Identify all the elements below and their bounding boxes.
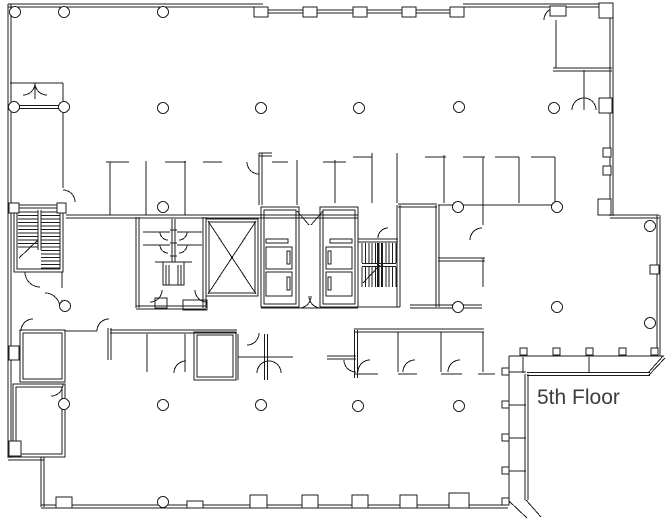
door-swing-arc bbox=[403, 360, 415, 372]
door-swing-arc bbox=[378, 228, 388, 238]
column-circle bbox=[645, 221, 656, 232]
window-mullion bbox=[187, 501, 203, 508]
floor-plan-page: 5th Floor bbox=[0, 0, 672, 520]
door-swing-arc bbox=[269, 361, 281, 373]
core-rect bbox=[266, 247, 292, 269]
window-mullion bbox=[586, 348, 593, 355]
outer-and-double-walls-layer bbox=[8, 4, 660, 508]
core-rect bbox=[194, 332, 236, 380]
door-swing-arc bbox=[247, 333, 259, 345]
floor-plan-svg: 5th Floor bbox=[0, 0, 672, 520]
column-circle bbox=[158, 400, 169, 411]
door-swing-arc bbox=[160, 245, 168, 253]
column-circle bbox=[256, 400, 267, 411]
window-mullion bbox=[603, 148, 611, 157]
window-mullion bbox=[353, 7, 367, 17]
door-swing-arcs-layer bbox=[21, 8, 596, 396]
window-mullion bbox=[9, 441, 21, 456]
window-mullion bbox=[400, 495, 417, 508]
columns-layer bbox=[9, 7, 656, 508]
door-swing-arc bbox=[35, 83, 47, 95]
window-mullion bbox=[502, 434, 509, 441]
wall-line bbox=[648, 356, 663, 373]
core-rect bbox=[23, 333, 62, 379]
window-mullion bbox=[599, 98, 612, 113]
window-mullion bbox=[402, 7, 416, 17]
core-rect bbox=[330, 239, 352, 243]
core-rects-layer bbox=[13, 205, 358, 457]
window-mullion bbox=[550, 6, 566, 16]
column-circle bbox=[59, 102, 70, 113]
core-rect bbox=[20, 330, 65, 382]
column-circle bbox=[453, 202, 464, 213]
door-swing-arc bbox=[63, 190, 75, 202]
door-swing-arc bbox=[23, 83, 35, 95]
window-mullion bbox=[502, 467, 509, 474]
column-circle bbox=[158, 497, 169, 508]
column-circle bbox=[552, 202, 563, 213]
window-mullion bbox=[553, 348, 560, 355]
window-mullion bbox=[450, 7, 464, 17]
stair-treads-layer bbox=[18, 212, 396, 287]
window-mullion bbox=[302, 495, 318, 508]
window-mullion bbox=[250, 495, 267, 508]
core-rect bbox=[197, 335, 233, 377]
door-swing-arc bbox=[358, 360, 370, 372]
door-swing-arc bbox=[470, 228, 482, 240]
core-rect bbox=[328, 251, 331, 264]
door-swing-arc bbox=[179, 245, 187, 253]
window-mullion bbox=[502, 498, 509, 505]
window-mullions-layer bbox=[9, 3, 659, 508]
core-rect bbox=[328, 277, 331, 290]
door-swing-arc bbox=[45, 293, 60, 308]
door-swing-arc bbox=[174, 361, 186, 373]
core-rect bbox=[326, 247, 352, 269]
column-circle bbox=[10, 7, 21, 18]
window-mullion bbox=[57, 203, 66, 213]
window-mullion bbox=[502, 401, 509, 408]
core-rect bbox=[287, 251, 290, 264]
door-swing-arc bbox=[160, 232, 168, 240]
window-mullion bbox=[449, 493, 469, 508]
window-mullion bbox=[9, 203, 19, 213]
core-rect bbox=[16, 387, 62, 454]
window-mullion bbox=[56, 497, 72, 508]
door-swing-arc bbox=[179, 232, 187, 240]
column-circle bbox=[256, 103, 267, 114]
window-mullion bbox=[599, 3, 613, 18]
column-circle bbox=[354, 103, 365, 114]
column-circle bbox=[158, 7, 169, 18]
door-swing-arc bbox=[448, 360, 460, 372]
wall-line bbox=[526, 500, 541, 517]
wall-line bbox=[648, 358, 665, 376]
door-swing-arc bbox=[51, 384, 63, 396]
column-circle bbox=[645, 318, 656, 329]
core-rect bbox=[264, 210, 296, 304]
column-circle bbox=[353, 401, 364, 412]
door-swing-arc bbox=[584, 98, 596, 110]
window-mullion bbox=[619, 348, 626, 355]
column-circle bbox=[59, 7, 70, 18]
door-swing-arc bbox=[572, 98, 584, 110]
window-mullion bbox=[603, 166, 611, 175]
window-mullion bbox=[502, 368, 509, 375]
window-mullion bbox=[303, 7, 317, 17]
door-swing-arc bbox=[97, 319, 109, 331]
column-circle bbox=[158, 103, 169, 114]
column-circle bbox=[59, 399, 70, 410]
column-circle bbox=[549, 103, 560, 114]
window-mullion bbox=[352, 495, 368, 508]
column-circle bbox=[453, 302, 464, 313]
window-mullion bbox=[9, 346, 19, 360]
door-swing-arc bbox=[247, 162, 259, 174]
door-swing-arc bbox=[150, 290, 162, 302]
core-rect bbox=[326, 272, 352, 296]
core-rect bbox=[266, 272, 292, 296]
core-rect bbox=[266, 239, 288, 243]
door-swing-arc bbox=[21, 319, 33, 331]
core-rect bbox=[261, 207, 299, 307]
window-mullion bbox=[598, 199, 611, 215]
column-circle bbox=[60, 301, 71, 312]
floor-label: 5th Floor bbox=[537, 386, 620, 409]
column-circle bbox=[454, 102, 465, 113]
window-mullion bbox=[254, 7, 268, 17]
column-circle bbox=[9, 102, 20, 113]
window-mullion bbox=[651, 348, 658, 355]
column-circle bbox=[158, 202, 169, 213]
window-mullion bbox=[520, 348, 527, 355]
wall-line bbox=[509, 501, 527, 518]
core-rect bbox=[287, 277, 290, 290]
column-circle bbox=[454, 401, 465, 412]
door-swing-arc bbox=[25, 272, 40, 287]
column-circle bbox=[552, 302, 563, 313]
window-mullion bbox=[650, 265, 659, 274]
wall-line bbox=[19, 240, 38, 258]
